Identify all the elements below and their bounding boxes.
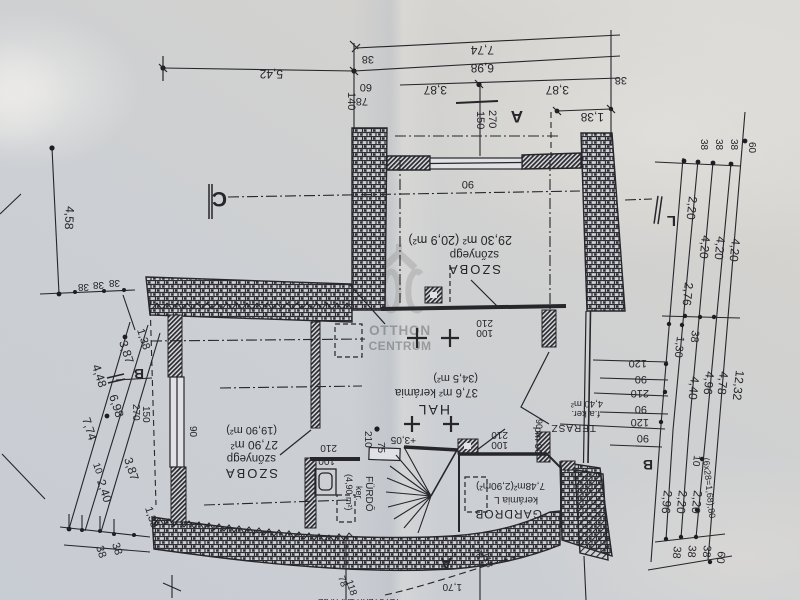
svg-text:27,90 m²: 27,90 m² bbox=[231, 438, 278, 452]
svg-text:2,20: 2,20 bbox=[689, 490, 705, 515]
svg-text:B: B bbox=[134, 366, 144, 382]
svg-text:OTTHON: OTTHON bbox=[369, 323, 431, 338]
svg-text:7,74: 7,74 bbox=[470, 43, 494, 57]
svg-text:2,96: 2,96 bbox=[659, 490, 675, 515]
svg-text:4,20: 4,20 bbox=[712, 236, 728, 261]
svg-text:szőnyegp: szőnyegp bbox=[450, 248, 499, 260]
svg-text:(19,90 m²): (19,90 m²) bbox=[226, 424, 277, 436]
svg-text:4,58: 4,58 bbox=[62, 206, 77, 230]
svg-text:3,87: 3,87 bbox=[545, 83, 569, 97]
svg-text:210: 210 bbox=[320, 442, 337, 453]
svg-text:1,30: 1,30 bbox=[672, 336, 686, 359]
svg-text:60: 60 bbox=[360, 81, 372, 93]
svg-text:A: A bbox=[440, 554, 452, 571]
svg-text:38: 38 bbox=[77, 281, 89, 292]
svg-text:4,40 m²: 4,40 m² bbox=[571, 398, 603, 409]
svg-text:90: 90 bbox=[635, 403, 647, 415]
svg-text:CENTRUM: CENTRUM bbox=[369, 339, 432, 353]
svg-text:60: 60 bbox=[746, 142, 757, 154]
svg-text:210: 210 bbox=[362, 431, 373, 448]
svg-text:(34,5 m²): (34,5 m²) bbox=[433, 372, 478, 384]
svg-text:38: 38 bbox=[108, 277, 120, 288]
svg-text:90: 90 bbox=[462, 178, 474, 190]
svg-text:90: 90 bbox=[637, 432, 649, 444]
svg-text:SZOBA: SZOBA bbox=[224, 466, 278, 481]
svg-text:270: 270 bbox=[486, 110, 498, 128]
svg-text:38: 38 bbox=[698, 139, 709, 151]
svg-text:38: 38 bbox=[685, 545, 698, 558]
svg-text:100: 100 bbox=[318, 455, 335, 466]
svg-text:140: 140 bbox=[345, 92, 357, 110]
svg-text:FÜRDŐ: FÜRDŐ bbox=[363, 476, 377, 512]
svg-text:37,6 m² kerámia: 37,6 m² kerámia bbox=[394, 386, 478, 398]
svg-text:L: L bbox=[667, 212, 676, 229]
svg-text:SZOBA: SZOBA bbox=[447, 262, 501, 277]
svg-text:+3,05: +3,05 bbox=[390, 434, 416, 445]
svg-text:38: 38 bbox=[92, 279, 104, 290]
svg-text:7,48m²(2,90m²): 7,48m²(2,90m²) bbox=[476, 480, 545, 491]
svg-text:1,70: 1,70 bbox=[442, 581, 462, 592]
svg-text:(4,90 m²): (4,90 m²) bbox=[344, 474, 354, 511]
svg-text:B: B bbox=[643, 457, 653, 473]
svg-text:4,96: 4,96 bbox=[701, 371, 717, 396]
svg-text:szőnyegp: szőnyegp bbox=[227, 452, 276, 464]
svg-text:90: 90 bbox=[187, 426, 198, 438]
svg-text:2,76: 2,76 bbox=[680, 282, 696, 307]
svg-text:150: 150 bbox=[474, 111, 486, 129]
svg-text:3,87: 3,87 bbox=[423, 83, 447, 97]
svg-text:38: 38 bbox=[728, 139, 739, 151]
svg-text:38: 38 bbox=[700, 545, 713, 558]
svg-text:1,38: 1,38 bbox=[580, 110, 604, 124]
svg-text:270: 270 bbox=[130, 404, 141, 421]
svg-text:38: 38 bbox=[615, 74, 627, 86]
svg-text:C: C bbox=[212, 187, 227, 210]
svg-text:120: 120 bbox=[629, 357, 647, 369]
svg-text:ker.: ker. bbox=[354, 486, 364, 501]
svg-text:38: 38 bbox=[688, 330, 701, 343]
svg-text:38: 38 bbox=[670, 546, 683, 559]
svg-text:90: 90 bbox=[534, 419, 544, 429]
svg-text:75: 75 bbox=[375, 442, 386, 454]
svg-text:2,20: 2,20 bbox=[684, 196, 700, 221]
svg-text:6,98: 6,98 bbox=[470, 61, 494, 75]
svg-text:pm 90: pm 90 bbox=[532, 427, 543, 455]
svg-text:4,20: 4,20 bbox=[727, 238, 743, 263]
svg-text:10: 10 bbox=[690, 455, 702, 468]
svg-text:TERASZ: TERASZ bbox=[551, 422, 596, 433]
svg-text:GARDROB: GARDROB bbox=[474, 507, 542, 521]
svg-text:29,30 m² (20,9 m²): 29,30 m² (20,9 m²) bbox=[408, 233, 512, 247]
svg-text:2,20: 2,20 bbox=[674, 490, 690, 515]
svg-text:210: 210 bbox=[476, 317, 493, 328]
svg-text:210: 210 bbox=[631, 387, 649, 399]
svg-text:4,20: 4,20 bbox=[697, 235, 713, 260]
svg-text:A: A bbox=[511, 107, 523, 126]
svg-text:kerámia L: kerámia L bbox=[494, 494, 538, 505]
svg-text:60: 60 bbox=[714, 551, 727, 564]
svg-text:4,40: 4,40 bbox=[686, 376, 702, 401]
svg-text:4,78: 4,78 bbox=[715, 371, 731, 396]
svg-text:90: 90 bbox=[635, 373, 647, 385]
svg-text:38: 38 bbox=[362, 53, 374, 65]
svg-text:210: 210 bbox=[491, 429, 508, 440]
svg-text:38: 38 bbox=[713, 139, 724, 151]
svg-text:5,42: 5,42 bbox=[259, 67, 283, 81]
svg-text:120: 120 bbox=[631, 416, 649, 428]
svg-text:HAL: HAL bbox=[417, 402, 450, 418]
